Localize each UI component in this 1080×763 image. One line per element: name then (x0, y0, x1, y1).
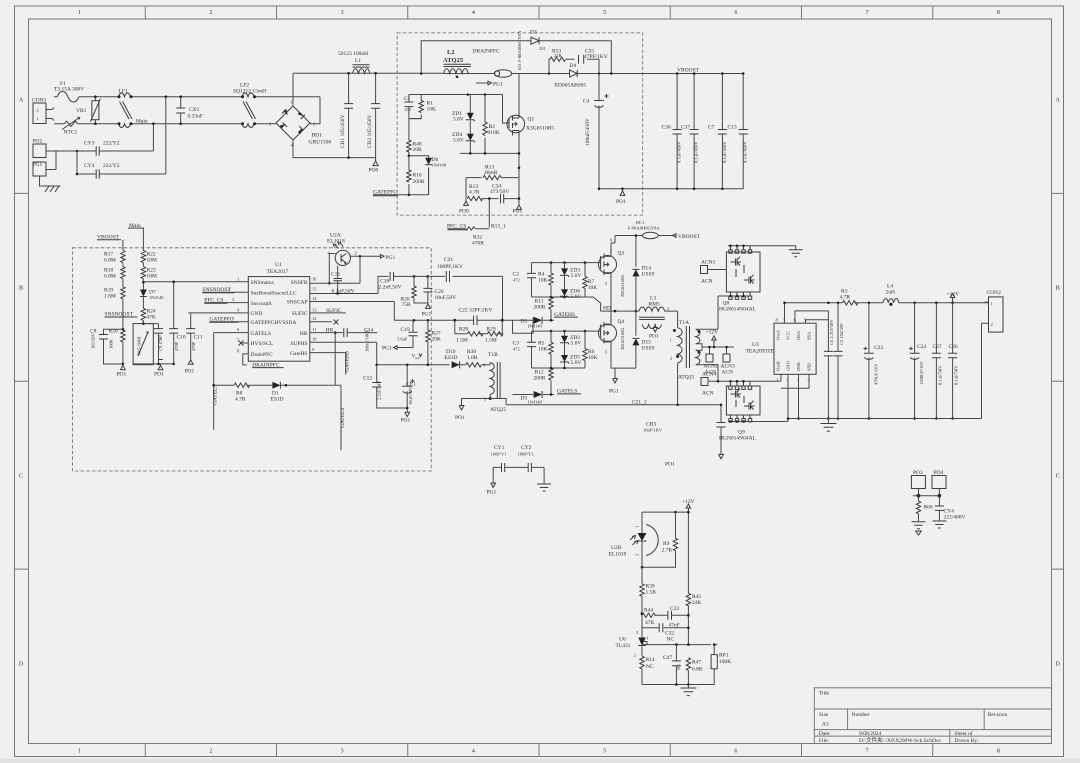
svg-text:C27: C27 (933, 344, 942, 350)
svg-text:SUFIC: SUFIC (292, 311, 308, 317)
svg-text:A: A (1056, 98, 1061, 104)
svg-text:PO1: PO1 (455, 415, 465, 421)
svg-text:5: 5 (603, 749, 606, 755)
svg-text:11: 11 (312, 327, 316, 332)
svg-text:PG1: PG1 (382, 346, 392, 352)
svg-text:100P/Y1: 100P/Y1 (518, 452, 534, 457)
svg-text:C19: C19 (401, 327, 410, 333)
svg-text:ACN: ACN (702, 391, 714, 397)
svg-text:T1B: T1B (488, 352, 498, 358)
svg-text:GATEPFC: GATEPFC (373, 190, 397, 196)
svg-text:0.1uF/50V: 0.1uF/50V (938, 365, 943, 385)
svg-text:VBOOST: VBOOST (677, 68, 700, 74)
svg-text:GBU1508: GBU1508 (309, 140, 332, 146)
svg-text:2.2nF,50V: 2.2nF,50V (379, 284, 402, 290)
svg-text:EL1018: EL1018 (327, 239, 345, 245)
svg-text:16: 16 (312, 276, 317, 281)
svg-text:10nF,50V: 10nF,50V (435, 295, 457, 301)
svg-text:RM5: RM5 (649, 302, 661, 308)
svg-text:100PF,1KV: 100PF,1KV (437, 264, 463, 270)
svg-text:2: 2 (355, 251, 357, 256)
svg-text:XIG6516B5: XIG6516B5 (620, 274, 625, 297)
svg-text:0.1uF/450V: 0.1uF/450V (677, 141, 682, 163)
svg-text:24K: 24K (692, 600, 702, 606)
svg-text:C10: C10 (177, 335, 186, 341)
svg-text:R14: R14 (646, 657, 655, 663)
svg-text:C7: C7 (708, 125, 715, 131)
svg-text:DSB: DSB (796, 362, 801, 371)
svg-text:10nF/1KV: 10nF/1KV (643, 428, 663, 433)
svg-text:50123 100uH: 50123 100uH (338, 51, 368, 57)
svg-text:RP1: RP1 (719, 653, 729, 659)
svg-text:Snscurpfc: Snscurpfc (251, 300, 274, 307)
svg-text:200R: 200R (413, 179, 425, 185)
svg-text:4.7R: 4.7R (840, 295, 851, 301)
svg-text:DRAINPFC: DRAINPFC (473, 49, 501, 55)
svg-text:SNSFB: SNSFB (291, 280, 308, 286)
svg-text:NTC1: NTC1 (64, 130, 78, 136)
svg-text:CY4: CY4 (84, 163, 95, 169)
svg-text:R13_1: R13_1 (491, 223, 506, 229)
svg-text:10K: 10K (538, 278, 548, 284)
svg-text:VR1: VR1 (76, 108, 87, 114)
svg-text:OutB: OutB (776, 361, 781, 371)
svg-text:C26: C26 (949, 344, 958, 350)
svg-text:1N4148: 1N4148 (149, 295, 164, 300)
svg-text:SSA: SSA (807, 331, 812, 340)
svg-text:R9: R9 (663, 541, 670, 547)
svg-text:C33: C33 (670, 606, 679, 612)
svg-text:NC: NC (646, 664, 654, 670)
svg-text:GateHS: GateHS (290, 351, 307, 357)
svg-text:C9 470P: C9 470P (158, 335, 163, 351)
svg-text:ES1D: ES1D (445, 355, 458, 361)
svg-text:SSB: SSB (807, 363, 812, 371)
svg-text:C22 33PF,1KV: C22 33PF,1KV (459, 308, 493, 314)
svg-text:8: 8 (997, 749, 1000, 755)
svg-text:1: 1 (991, 301, 993, 306)
svg-text:5.6V: 5.6V (571, 360, 582, 366)
svg-text:VCC: VCC (786, 331, 791, 340)
svg-text:1: 1 (647, 636, 649, 641)
svg-text:CE1: CE1 (406, 381, 416, 387)
svg-text:EL1018: EL1018 (609, 552, 627, 558)
svg-text:USS9: USS9 (642, 272, 655, 278)
svg-text:C21: C21 (444, 257, 453, 263)
svg-text:470P: 470P (174, 341, 179, 351)
svg-text:TEA2093TE: TEA2093TE (746, 349, 775, 355)
svg-text:3: 3 (341, 10, 344, 16)
svg-text:472: 472 (405, 107, 412, 112)
svg-text:XD065AB065: XD065AB065 (554, 83, 586, 89)
svg-text:2: 2 (37, 108, 39, 113)
svg-text:U6: U6 (619, 637, 626, 643)
svg-text:100K: 100K (109, 338, 114, 349)
svg-text:222/Y2: 222/Y2 (103, 163, 120, 169)
svg-text:BC1: BC1 (636, 220, 644, 225)
svg-text:ACN1: ACN1 (701, 260, 716, 266)
svg-text:222/400V: 222/400V (944, 515, 966, 521)
svg-text:5.6V: 5.6V (571, 273, 582, 279)
svg-text:PO0: PO0 (459, 209, 469, 215)
svg-text:PG1: PG1 (493, 82, 503, 88)
svg-text:200R: 200R (534, 376, 546, 382)
svg-text:C: C (1056, 474, 1060, 480)
svg-text:C47: C47 (663, 655, 672, 661)
svg-text:Title: Title (819, 691, 830, 697)
svg-text:CX1: CX1 (189, 107, 200, 113)
svg-text:F-08A0H6GY9A: F-08A0H6GY9A (628, 226, 660, 231)
svg-text:T1A: T1A (679, 320, 689, 326)
svg-text:1: 1 (291, 100, 293, 105)
svg-text:SnsBoostSnscurLLC: SnsBoostSnscurLLC (251, 290, 297, 296)
svg-text:7: 7 (866, 10, 869, 16)
svg-text:Sheet of: Sheet of (954, 730, 972, 737)
svg-text:331: 331 (539, 46, 546, 51)
svg-text:C5 104/50V: C5 104/50V (839, 322, 844, 345)
svg-text:B: B (19, 286, 23, 292)
svg-text:9/08/2024: 9/08/2024 (859, 731, 882, 737)
svg-text:1.5K: 1.5K (646, 590, 657, 596)
svg-text:470R: 470R (472, 241, 484, 247)
svg-text:102/20V: 102/20V (91, 332, 96, 349)
svg-text:HGN014N04AL: HGN014N04AL (719, 307, 757, 313)
svg-text:7: 7 (866, 749, 869, 755)
svg-text:PO1: PO1 (401, 418, 411, 424)
svg-text:Number: Number (852, 712, 870, 718)
svg-text:10: 10 (312, 337, 317, 342)
svg-text:15: 15 (312, 287, 317, 292)
svg-text:OutA: OutA (776, 329, 781, 340)
svg-text:1.0R: 1.0R (467, 355, 478, 361)
svg-text:SNSmains: SNSmains (251, 280, 274, 286)
svg-text:HVS/SCL: HVS/SCL (251, 341, 274, 347)
svg-text:0.1uF/450V: 0.1uF/450V (694, 141, 699, 163)
svg-text:20R: 20R (413, 147, 423, 153)
svg-text:U1: U1 (275, 262, 282, 268)
svg-text:C21_2: C21_2 (632, 400, 647, 406)
svg-text:100uF/450V: 100uF/450V (585, 118, 591, 146)
svg-text:47PF/1KV: 47PF/1KV (584, 54, 608, 60)
svg-text:Q1: Q1 (528, 117, 535, 123)
svg-text:13: 13 (312, 307, 317, 312)
svg-text:2: 2 (313, 122, 315, 127)
svg-text:0.33uF: 0.33uF (188, 114, 203, 120)
svg-text:D4: D4 (570, 63, 577, 69)
svg-text:ACN: ACN (722, 370, 734, 376)
svg-text:GND: GND (251, 311, 263, 317)
svg-text:Q3: Q3 (618, 251, 625, 257)
svg-text:PFC_CS: PFC_CS (447, 223, 466, 229)
svg-text:2: 2 (209, 749, 212, 755)
svg-text:L1: L1 (355, 58, 361, 64)
svg-text:100P/Y1: 100P/Y1 (491, 452, 507, 457)
svg-text:470P: 470P (191, 341, 196, 351)
svg-text:1: 1 (37, 116, 39, 121)
svg-text:XIG6516B5: XIG6516B5 (620, 327, 625, 350)
svg-text:D2: D2 (521, 319, 528, 325)
svg-text:CY2: CY2 (521, 445, 532, 451)
svg-text:5: 5 (603, 10, 606, 16)
svg-text:C4: C4 (583, 99, 590, 105)
svg-text:47K: 47K (645, 620, 655, 626)
svg-text:R29: R29 (487, 327, 496, 333)
svg-text:ATQ25: ATQ25 (443, 57, 464, 64)
svg-text:D: D (19, 662, 24, 668)
svg-text:C37: C37 (681, 125, 690, 131)
svg-text:100K: 100K (719, 659, 731, 665)
svg-text:222/Y2: 222/Y2 (103, 141, 120, 147)
svg-text:0.1uF/50V: 0.1uF/50V (954, 365, 959, 385)
svg-text:Date:: Date: (819, 731, 831, 737)
svg-text:40mR: 40mR (484, 170, 498, 176)
svg-text:PG1: PG1 (386, 255, 396, 261)
svg-text:U3: U3 (752, 342, 759, 348)
svg-text:4: 4 (472, 10, 475, 16)
svg-text:CY3: CY3 (84, 141, 95, 147)
svg-text:ES1D: ES1D (271, 397, 284, 403)
svg-text:GATELS: GATELS (340, 408, 346, 428)
svg-text:470UF/16V: 470UF/16V (874, 363, 879, 385)
svg-text:2: 2 (635, 554, 640, 556)
svg-text:PG1: PG1 (422, 312, 432, 318)
svg-text:C23: C23 (874, 345, 883, 351)
svg-text:5.6V: 5.6V (453, 117, 464, 123)
svg-text:5.6V: 5.6V (571, 341, 582, 347)
svg-text:HGN014N04AL: HGN014N04AL (719, 436, 757, 442)
svg-text:U2B: U2B (611, 545, 622, 551)
svg-text:PO1: PO1 (649, 334, 659, 340)
svg-text:GATEPFCHVSSDA: GATEPFCHVSSDA (251, 320, 297, 326)
svg-text:910K: 910K (488, 130, 500, 136)
svg-text:LF1: LF1 (119, 89, 128, 95)
svg-text:R10: R10 (413, 173, 422, 179)
svg-text:1: 1 (635, 526, 640, 528)
svg-text:C13: C13 (728, 125, 737, 131)
svg-text:1: 1 (78, 749, 81, 755)
svg-text:22R: 22R (554, 53, 562, 58)
svg-text:14: 14 (312, 296, 317, 301)
svg-text:1: 1 (237, 276, 239, 281)
svg-text:SUPHS: SUPHS (290, 341, 307, 347)
svg-text:CB2 105/450V: CB2 105/450V (367, 115, 373, 148)
svg-text:A: A (19, 98, 24, 104)
svg-text:PG1: PG1 (33, 162, 43, 168)
svg-text:GND: GND (786, 361, 791, 371)
svg-text:PO1: PO1 (513, 209, 523, 215)
svg-text:6: 6 (734, 10, 737, 16)
svg-text:PG1: PG1 (609, 389, 619, 395)
svg-text:L2: L2 (447, 49, 455, 56)
svg-text:2.7K: 2.7K (662, 548, 673, 554)
svg-text:C1: C1 (404, 96, 411, 102)
svg-text:D: D (1056, 662, 1061, 668)
svg-text:1500UF/16V: 1500UF/16V (919, 360, 924, 385)
svg-text:HB: HB (326, 328, 334, 334)
svg-text:1.5M: 1.5M (485, 338, 497, 344)
svg-text:4.7R: 4.7R (235, 397, 246, 403)
svg-text:472: 472 (513, 278, 520, 283)
svg-text:6.8M: 6.8M (104, 274, 116, 280)
svg-text:D:\文件夹\ \X0\X200W-Sch.SchDoc: D:\文件夹\ \X0\X200W-Sch.SchDoc (859, 736, 942, 744)
svg-text:1.5M: 1.5M (456, 338, 468, 344)
svg-text:TL431: TL431 (616, 643, 631, 649)
svg-text:SQ1212 15mH: SQ1212 15mH (233, 89, 266, 95)
svg-text:Drawn By:: Drawn By: (954, 738, 979, 744)
svg-text:PO1: PO1 (154, 372, 164, 378)
svg-text:IN4148: IN4148 (528, 400, 542, 405)
svg-text:R66: R66 (924, 505, 933, 511)
svg-text:3: 3 (341, 749, 344, 755)
svg-text:Size: Size (819, 712, 829, 718)
svg-text:C15: C15 (331, 271, 340, 277)
svg-text:TEA2017: TEA2017 (267, 269, 289, 275)
svg-text:CON1: CON1 (32, 98, 47, 104)
svg-text:B: B (1056, 286, 1060, 292)
svg-text:C12: C12 (363, 376, 372, 382)
svg-text:D3: D3 (530, 30, 537, 36)
svg-text:sup: sup (415, 356, 420, 360)
svg-text:PO1: PO1 (185, 369, 195, 375)
svg-text:IN4148: IN4148 (528, 324, 542, 329)
svg-text:GATELS: GATELS (251, 331, 271, 337)
svg-text:R44: R44 (644, 608, 653, 614)
svg-text:10uF/50V: 10uF/50V (408, 386, 413, 405)
svg-text:10K: 10K (427, 107, 437, 113)
svg-text:20K: 20K (432, 337, 442, 343)
svg-text:#21 F-08A0H6GY9A: #21 F-08A0H6GY9A (517, 30, 522, 70)
svg-text:HD: HD (603, 305, 611, 311)
svg-text:HB: HB (300, 331, 308, 337)
svg-text:2uH: 2uH (886, 290, 896, 296)
svg-text:2: 2 (991, 322, 993, 327)
svg-text:2: 2 (670, 356, 672, 361)
svg-text:PO0: PO0 (369, 168, 379, 174)
svg-text:5.6V: 5.6V (453, 138, 464, 144)
svg-text:5.6nF: 5.6nF (397, 337, 408, 342)
svg-text:ACN: ACN (701, 279, 713, 285)
svg-text:SUFIC: SUFIC (326, 308, 342, 314)
svg-text:4: 4 (472, 749, 475, 755)
svg-text:PO1: PO1 (665, 462, 675, 468)
svg-text:CON2: CON2 (987, 290, 1002, 296)
svg-text:2: 2 (209, 10, 212, 16)
svg-text:C11: C11 (194, 335, 203, 341)
svg-text:Q4: Q4 (618, 319, 625, 325)
svg-text:PO1: PO1 (616, 199, 626, 205)
svg-text:GATEHS: GATEHS (344, 351, 350, 372)
svg-text:NC: NC (667, 637, 675, 643)
svg-text:100nF/100V: 100nF/100V (365, 328, 370, 352)
svg-text:DrainPFC: DrainPFC (251, 352, 274, 358)
svg-text:DSA: DSA (796, 330, 801, 340)
svg-text:10M: 10M (147, 258, 158, 264)
svg-text:6.8K: 6.8K (692, 667, 703, 673)
svg-text:10K: 10K (538, 347, 548, 353)
svg-text:1N4148: 1N4148 (432, 163, 447, 168)
svg-text:VBOOST: VBOOST (678, 234, 701, 240)
svg-text:T3.15A 300V: T3.15A 300V (54, 87, 84, 93)
svg-text:C: C (19, 474, 23, 480)
svg-text:PG1: PG1 (487, 490, 497, 496)
svg-text:C24: C24 (917, 344, 926, 350)
svg-text:CY1: CY1 (494, 445, 505, 451)
svg-text:C6 2.2UF50V: C6 2.2UF50V (829, 319, 834, 345)
svg-text:BD1: BD1 (312, 133, 323, 139)
svg-text:File:: File: (819, 738, 830, 744)
svg-text:ATQ25: ATQ25 (678, 375, 694, 381)
svg-text:R65 560R: R65 560R (137, 337, 142, 355)
svg-text:ACN4: ACN4 (702, 372, 717, 378)
svg-text:C36: C36 (662, 125, 671, 131)
svg-text:1.8M: 1.8M (104, 294, 116, 300)
svg-text:10K: 10K (588, 355, 598, 361)
svg-text:0.1uF/450V: 0.1uF/450V (743, 141, 748, 163)
svg-text:D3: D3 (521, 396, 528, 402)
svg-text:R28: R28 (459, 327, 468, 333)
svg-text:1: 1 (776, 377, 778, 382)
svg-text:2: 2 (667, 306, 669, 311)
svg-text:0.1uF/450V: 0.1uF/450V (722, 141, 727, 163)
svg-text:R20: R20 (109, 329, 118, 335)
svg-text:PO2: PO2 (33, 139, 43, 145)
svg-text:GATELS: GATELS (212, 385, 218, 405)
svg-text:6.8M: 6.8M (104, 258, 116, 264)
svg-text:473/50V: 473/50V (490, 189, 509, 195)
svg-text:6: 6 (734, 749, 737, 755)
svg-text:1: 1 (78, 10, 81, 16)
svg-text:+12V: +12V (706, 330, 719, 336)
svg-text:10M: 10M (147, 274, 158, 280)
svg-text:2.2nF/50V: 2.2nF/50V (377, 380, 382, 400)
svg-text:PO1: PO1 (117, 372, 127, 378)
svg-text:10K: 10K (588, 285, 598, 291)
svg-text:472: 472 (513, 347, 520, 352)
svg-text:47K: 47K (147, 315, 157, 321)
svg-text:ATQ25: ATQ25 (490, 407, 506, 413)
svg-text:1: 1 (670, 338, 672, 343)
svg-text:R47: R47 (692, 660, 701, 666)
svg-text:75R: 75R (402, 302, 412, 308)
svg-text:CB1 105/450V: CB1 105/450V (340, 115, 346, 148)
svg-text:Main: Main (136, 119, 148, 125)
svg-text:4.7R: 4.7R (469, 190, 480, 196)
svg-text:NC: NC (676, 664, 681, 670)
svg-text:Revision: Revision (988, 712, 1008, 718)
svg-text:200R: 200R (534, 305, 546, 311)
svg-text:+12V: +12V (947, 292, 960, 298)
svg-text:A3: A3 (822, 722, 829, 728)
svg-text:SNSCAP: SNSCAP (287, 300, 308, 306)
svg-text:2: 2 (634, 653, 636, 658)
svg-text:12: 12 (312, 316, 317, 321)
svg-text:X3G6516B5: X3G6516B5 (526, 126, 554, 132)
svg-text:8: 8 (997, 10, 1000, 16)
svg-text:USS9: USS9 (642, 346, 655, 352)
